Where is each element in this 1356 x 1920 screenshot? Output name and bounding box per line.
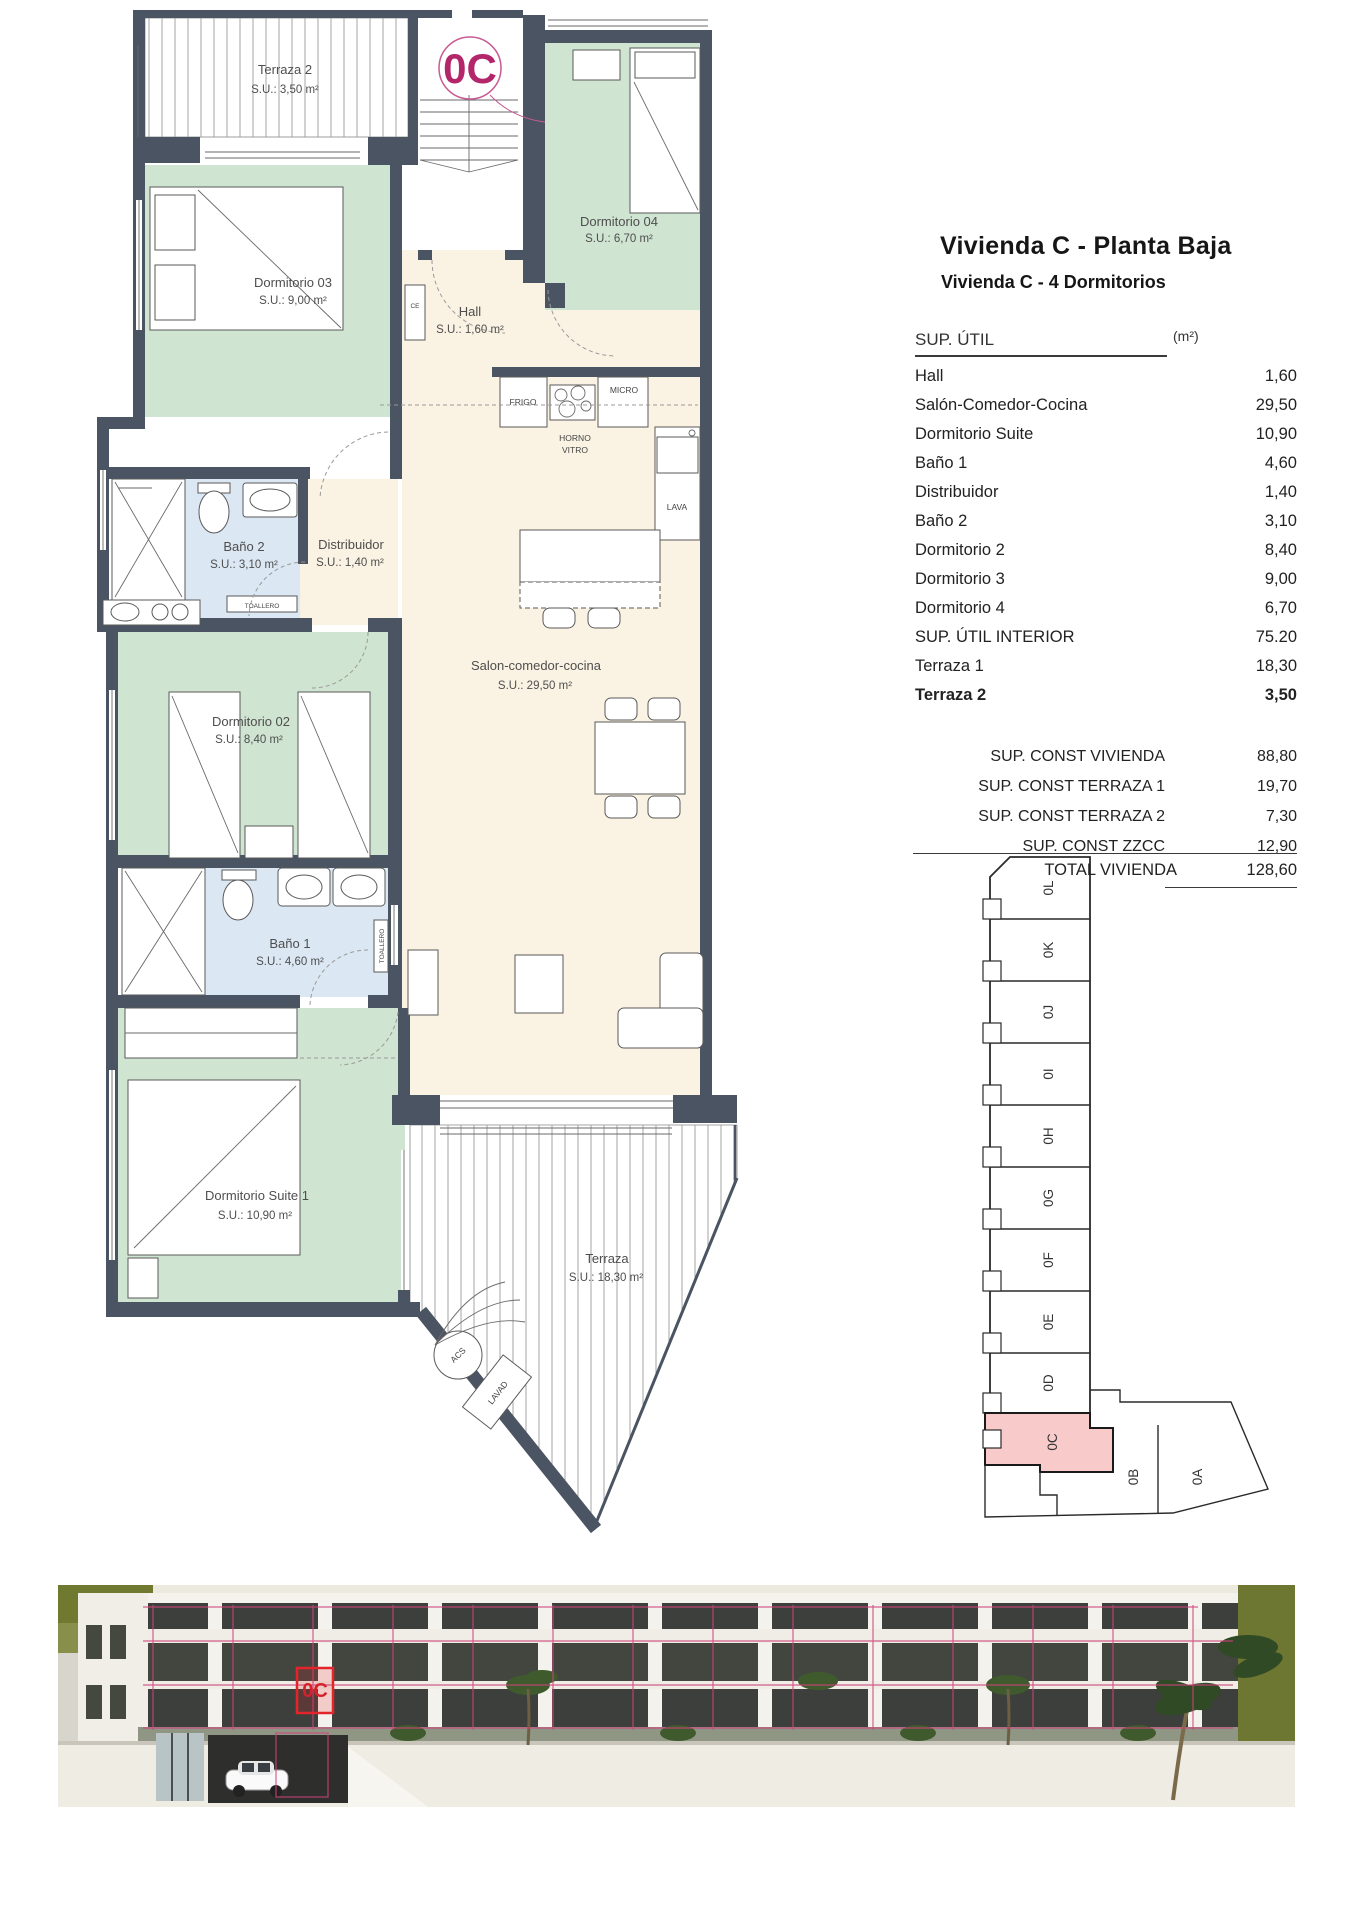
label-lava: LAVA: [667, 502, 688, 512]
label-hall: Hall: [459, 304, 482, 319]
svg-text:0E: 0E: [1041, 1314, 1056, 1331]
summary-row: SUP. CONST TERRAZA 119,70: [915, 772, 1297, 802]
page-subtitle: Vivienda C - 4 Dormitorios: [941, 272, 1166, 293]
svg-text:VITRO: VITRO: [562, 445, 588, 455]
area-row: Terraza 118,30: [915, 652, 1297, 681]
area-row: Distribuidor1,40: [915, 478, 1297, 507]
label-terraza: Terraza: [585, 1251, 629, 1266]
label-dormitorio3: Dormitorio 03: [254, 275, 332, 290]
svg-text:0A: 0A: [1190, 1469, 1205, 1486]
render-unit-marker: 0C: [297, 1668, 333, 1713]
keyplan-labels: 0L 0K 0J 0I 0H 0G 0F 0E 0D 0C 0B 0A: [1041, 880, 1205, 1485]
area-row: Dormitorio 39,00: [915, 565, 1297, 594]
label-terraza2: Terraza 2: [258, 62, 312, 77]
svg-text:S.U.: 6,70 m²: S.U.: 6,70 m²: [585, 233, 653, 245]
area-table-title: SUP. ÚTIL: [915, 330, 1167, 357]
room-terraza: [410, 1125, 737, 1530]
total-label: TOTAL VIVIENDA: [915, 861, 1177, 880]
svg-text:S.U.: 1,60 m²: S.U.: 1,60 m²: [436, 324, 504, 336]
label-toallero-1: TOALLERO: [379, 929, 386, 964]
key-plan: 0L 0K 0J 0I 0H 0G 0F 0E 0D 0C 0B 0A: [940, 848, 1285, 1528]
svg-text:S.U.: 18,30 m²: S.U.: 18,30 m²: [569, 1272, 643, 1284]
unit-badge-label: 0C: [443, 45, 497, 92]
area-row: Salón-Comedor-Cocina29,50: [915, 391, 1297, 420]
render-unit-marker-label: 0C: [302, 1680, 328, 1702]
svg-text:0H: 0H: [1041, 1127, 1056, 1144]
render-entrance: [156, 1733, 204, 1801]
area-row: Baño 23,10: [915, 507, 1297, 536]
svg-text:0B: 0B: [1126, 1469, 1141, 1486]
svg-text:0I: 0I: [1041, 1068, 1056, 1079]
label-ce: CE: [410, 303, 420, 310]
area-row: Dormitorio 28,40: [915, 536, 1297, 565]
area-row: Terraza 23,50: [915, 681, 1297, 710]
keyplan-outline: [990, 857, 1090, 1413]
keyplan-highlight-label: 0C: [1045, 1433, 1060, 1451]
room-distribuidor: [300, 479, 398, 625]
svg-text:0K: 0K: [1041, 942, 1056, 959]
page-title: Vivienda C - Planta Baja: [940, 232, 1232, 261]
summary-divider: [913, 853, 1297, 854]
svg-text:S.U.: 4,60 m²: S.U.: 4,60 m²: [256, 956, 324, 968]
floor-plan: 0C Terraza 2 S.U.: 3,50 m² Dormitorio 03…: [0, 0, 760, 1545]
keyplan-notches: [983, 899, 1001, 1413]
label-salon: Salon-comedor-cocina: [471, 658, 602, 673]
render-balcony-bands: [78, 1593, 1238, 1743]
label-bano1: Baño 1: [269, 936, 310, 951]
svg-text:S.U.: 9,00 m²: S.U.: 9,00 m²: [259, 295, 327, 307]
svg-text:S.U.: 10,90 m²: S.U.: 10,90 m²: [218, 1210, 292, 1222]
area-table-header: SUP. ÚTIL (m²): [915, 330, 1297, 362]
svg-text:S.U.: 29,50 m²: S.U.: 29,50 m²: [498, 680, 572, 692]
summary-table: SUP. CONST VIVIENDA88,80 SUP. CONST TERR…: [915, 742, 1297, 862]
svg-text:S.U.: 1,40 m²: S.U.: 1,40 m²: [316, 557, 384, 569]
svg-text:0J: 0J: [1041, 1005, 1056, 1019]
svg-text:S.U.: 3,10 m²: S.U.: 3,10 m²: [210, 559, 278, 571]
svg-text:S.U.: 3,50 m²: S.U.: 3,50 m²: [251, 84, 319, 96]
summary-row: SUP. CONST VIVIENDA88,80: [915, 742, 1297, 772]
label-horno: HORNO: [559, 433, 591, 443]
area-row: Dormitorio 46,70: [915, 594, 1297, 623]
label-dormitorio2: Dormitorio 02: [212, 714, 290, 729]
label-frigo: FRIGO: [510, 397, 537, 407]
room-terraza-2: [145, 18, 408, 137]
area-table: SUP. ÚTIL (m²) Hall1,60 Salón-Comedor-Co…: [915, 330, 1297, 710]
total-row: TOTAL VIVIENDA 128,60: [915, 855, 1297, 885]
plan-sheet: 0C Terraza 2 S.U.: 3,50 m² Dormitorio 03…: [0, 0, 1356, 1920]
label-micro: MICRO: [610, 385, 639, 395]
summary-row: SUP. CONST TERRAZA 27,30: [915, 802, 1297, 832]
label-bano2: Baño 2: [223, 539, 264, 554]
area-row: Hall1,60: [915, 362, 1297, 391]
area-row: Baño 14,60: [915, 449, 1297, 478]
total-value: 128,60: [1177, 861, 1297, 880]
svg-text:0F: 0F: [1041, 1252, 1056, 1268]
svg-text:0D: 0D: [1041, 1374, 1056, 1392]
building-render: 0C: [58, 1585, 1295, 1807]
label-dormitorio4: Dormitorio 04: [580, 214, 658, 229]
svg-text:S.U.: 8,40 m²: S.U.: 8,40 m²: [215, 734, 283, 746]
area-row-subtotal: SUP. ÚTIL INTERIOR75.20: [915, 623, 1297, 652]
total-underline: [1165, 887, 1297, 888]
label-suite: Dormitorio Suite 1: [205, 1188, 309, 1203]
svg-text:0G: 0G: [1041, 1189, 1056, 1207]
area-row: Dormitorio Suite10,90: [915, 420, 1297, 449]
label-toallero-2: TOALLERO: [245, 603, 280, 610]
label-distribuidor: Distribuidor: [318, 537, 384, 552]
area-table-unit: (m²): [1173, 328, 1199, 344]
